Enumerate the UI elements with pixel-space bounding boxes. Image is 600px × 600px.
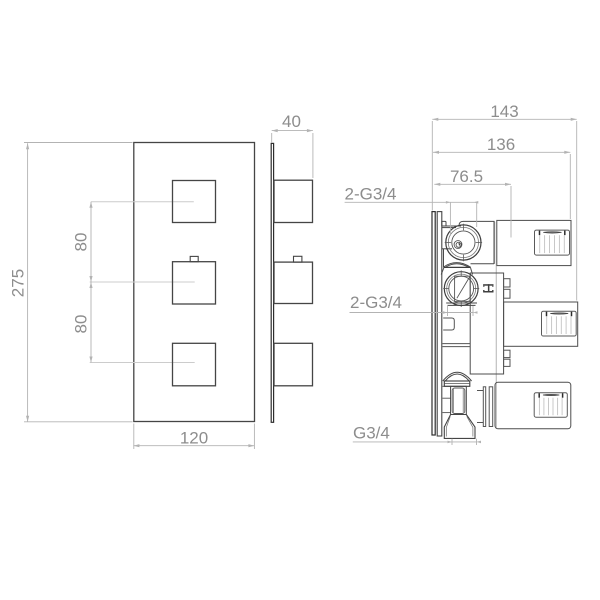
svg-text:120: 120	[180, 428, 208, 447]
svg-text:80: 80	[71, 315, 90, 334]
svg-text:143: 143	[490, 102, 518, 121]
svg-text:G3/4: G3/4	[353, 424, 390, 443]
svg-text:2-G3/4: 2-G3/4	[350, 293, 402, 312]
svg-text:80: 80	[71, 233, 90, 252]
svg-text:40: 40	[282, 112, 301, 131]
svg-text:76.5: 76.5	[450, 167, 483, 186]
svg-text:275: 275	[8, 269, 27, 297]
svg-text:2-G3/4: 2-G3/4	[345, 185, 397, 204]
svg-text:136: 136	[487, 135, 515, 154]
